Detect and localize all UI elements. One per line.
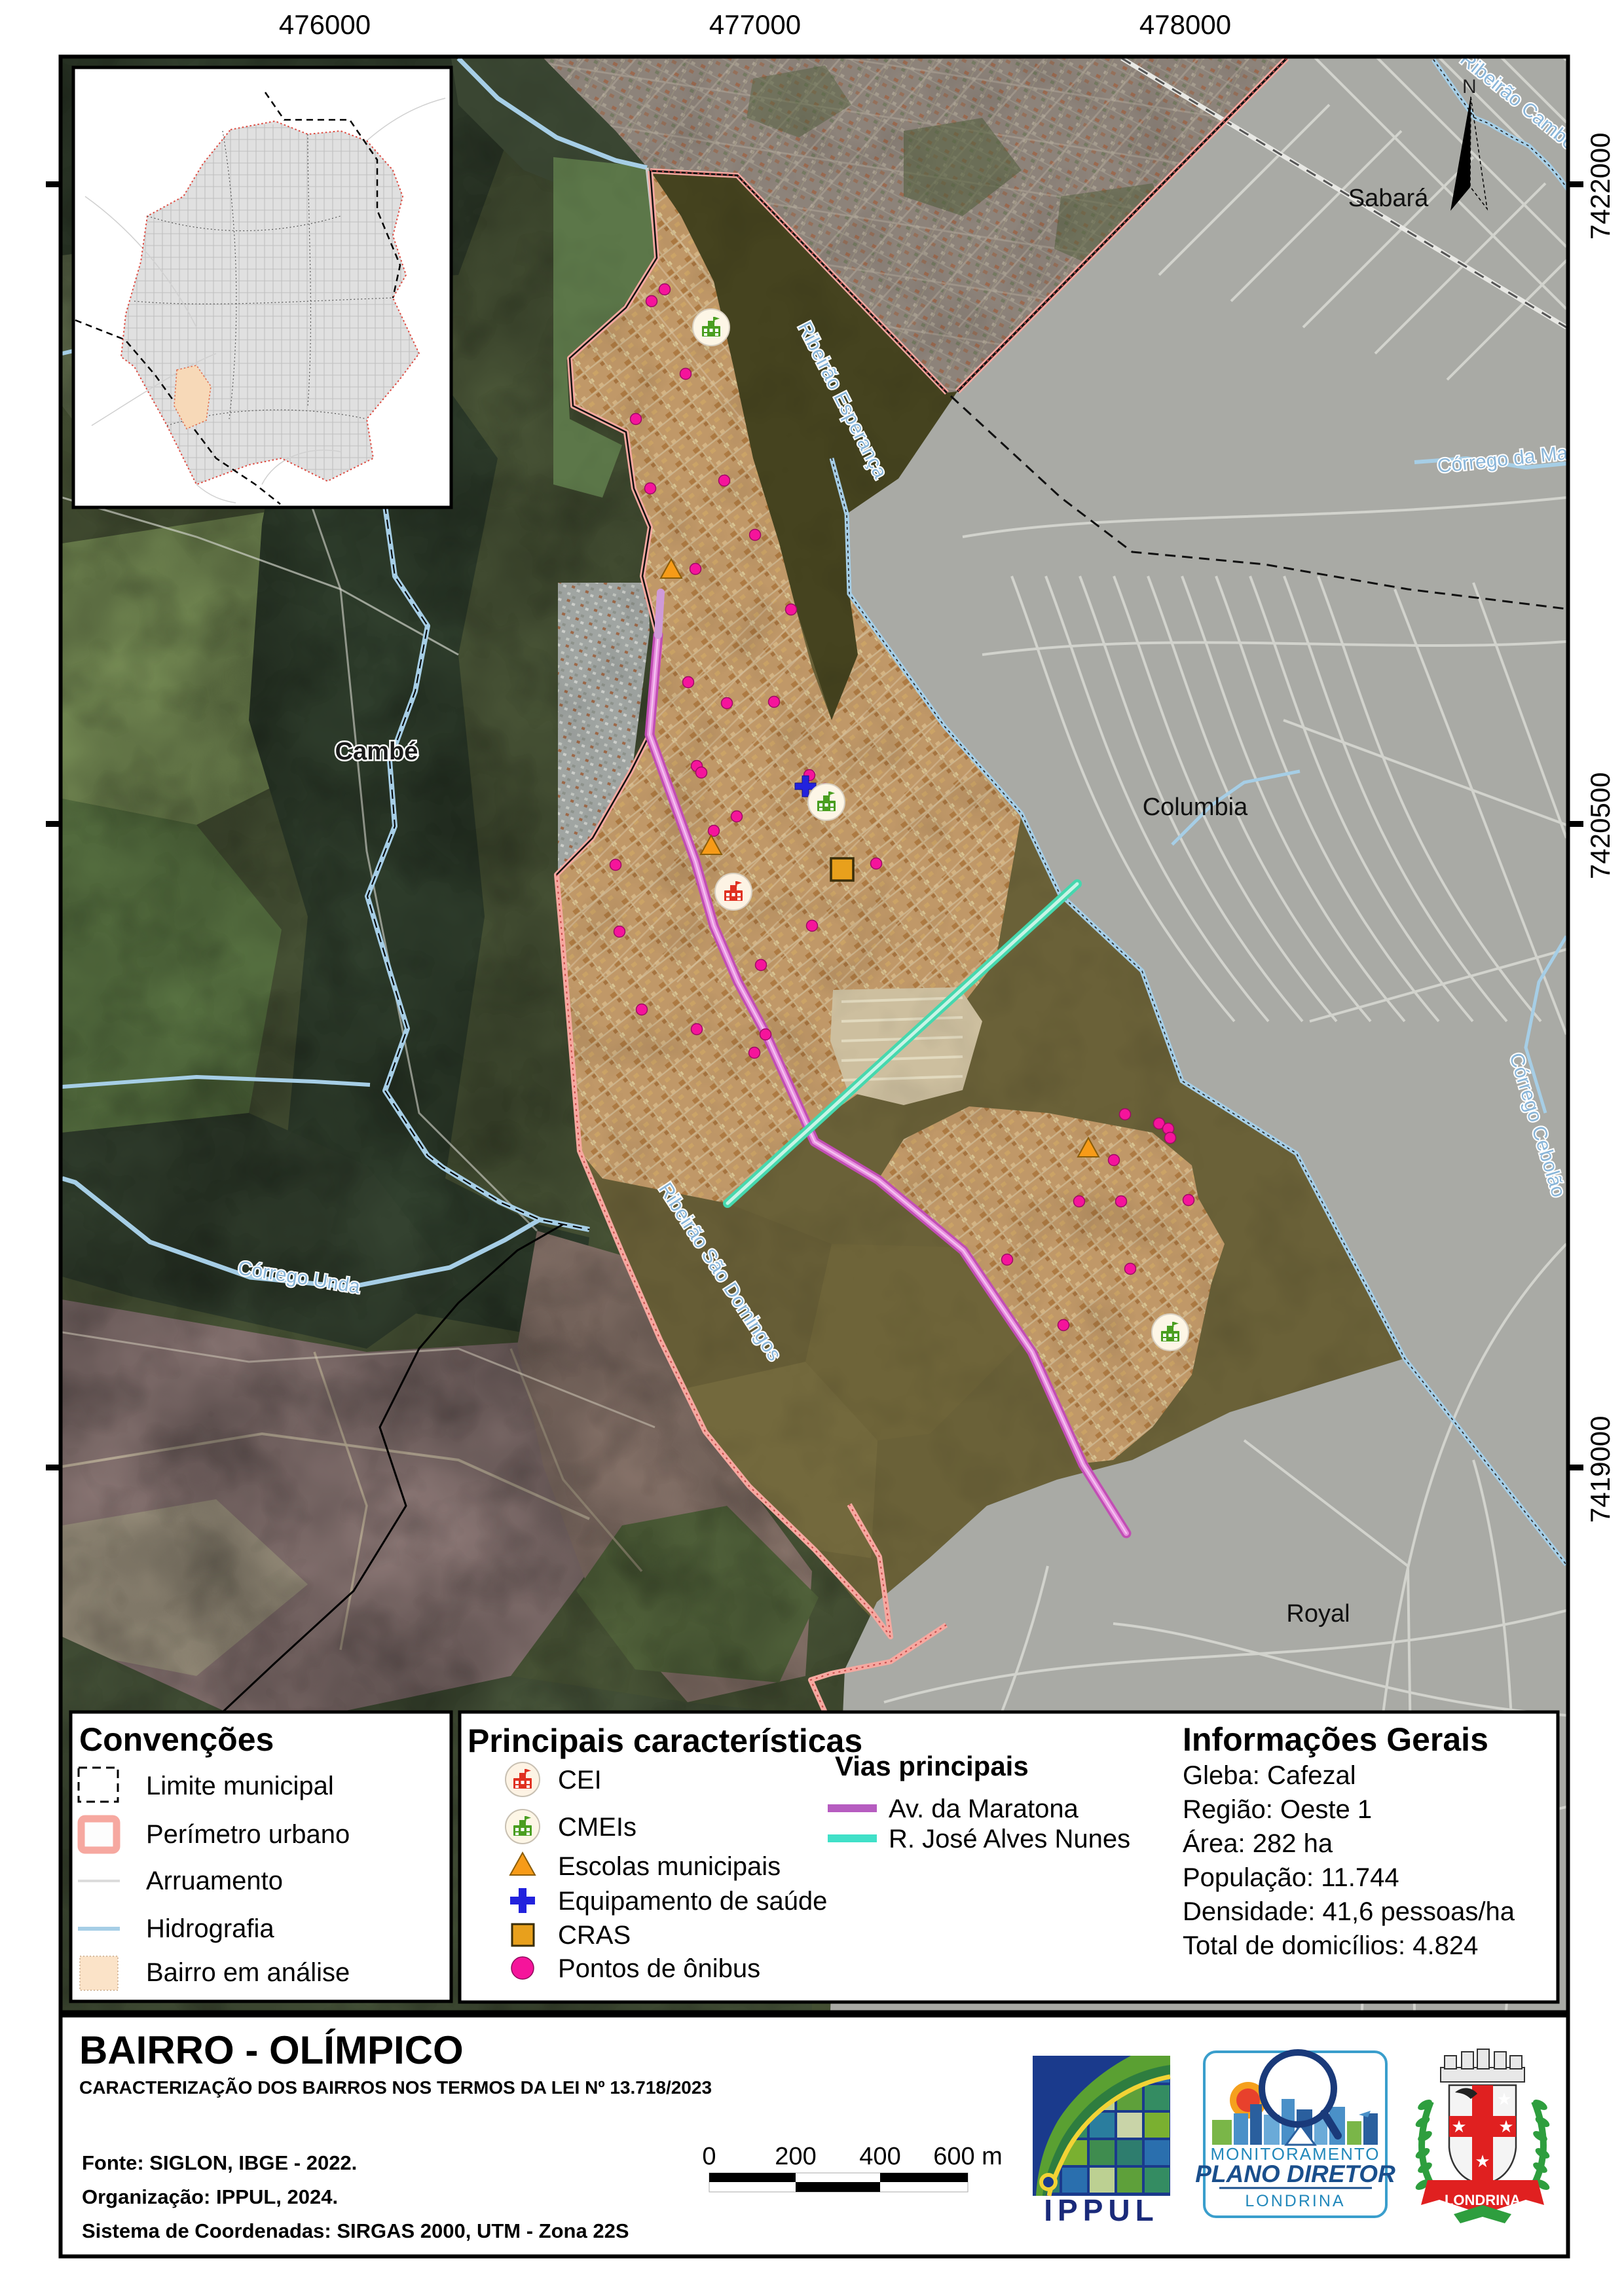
svg-text:População: 11.744: População: 11.744 bbox=[1183, 1863, 1399, 1892]
svg-text:R. José Alves Nunes: R. José Alves Nunes bbox=[889, 1825, 1130, 1853]
svg-text:★: ★ bbox=[1475, 2151, 1490, 2171]
svg-text:Escolas municipais: Escolas municipais bbox=[558, 1852, 781, 1881]
svg-text:600 m: 600 m bbox=[933, 2143, 1003, 2170]
svg-text:CARACTERIZAÇÃO DOS BAIRROS NOS: CARACTERIZAÇÃO DOS BAIRROS NOS TERMOS DA… bbox=[79, 2077, 712, 2098]
svg-text:476000: 476000 bbox=[279, 9, 371, 40]
svg-text:BAIRRO - OLÍMPICO: BAIRRO - OLÍMPICO bbox=[79, 2028, 464, 2072]
svg-text:★: ★ bbox=[1451, 2117, 1466, 2136]
svg-text:0: 0 bbox=[702, 2143, 716, 2170]
svg-text:400: 400 bbox=[859, 2143, 900, 2170]
svg-text:Fonte: SIGLON, IBGE - 2022.: Fonte: SIGLON, IBGE - 2022. bbox=[82, 2151, 357, 2174]
svg-text:Vias principais: Vias principais bbox=[835, 1751, 1029, 1781]
svg-text:Royal: Royal bbox=[1286, 1600, 1350, 1628]
svg-text:Arruamento: Arruamento bbox=[146, 1867, 283, 1895]
svg-text:7420500: 7420500 bbox=[1585, 772, 1615, 879]
svg-text:CRAS: CRAS bbox=[558, 1921, 631, 1950]
svg-text:N: N bbox=[1462, 76, 1477, 98]
svg-text:★: ★ bbox=[1498, 2117, 1513, 2136]
svg-text:Convenções: Convenções bbox=[79, 1721, 274, 1758]
svg-text:Cambé: Cambé bbox=[335, 738, 418, 765]
svg-text:Sistema de Coordenadas: SIRGAS: Sistema de Coordenadas: SIRGAS 2000, UTM… bbox=[82, 2219, 629, 2242]
svg-text:Sabará: Sabará bbox=[1348, 185, 1429, 212]
svg-text:7422000: 7422000 bbox=[1585, 132, 1615, 240]
svg-text:477000: 477000 bbox=[709, 9, 801, 40]
svg-text:Equipamento de saúde: Equipamento de saúde bbox=[558, 1887, 827, 1916]
svg-text:Área: 282 ha: Área: 282 ha bbox=[1183, 1829, 1333, 1858]
svg-text:478000: 478000 bbox=[1139, 9, 1231, 40]
svg-text:7419000: 7419000 bbox=[1585, 1415, 1615, 1523]
svg-text:Informações Gerais: Informações Gerais bbox=[1183, 1721, 1488, 1758]
svg-text:Pontos de ônibus: Pontos de ônibus bbox=[558, 1954, 760, 1983]
svg-text:Total de domicílios: 4.824: Total de domicílios: 4.824 bbox=[1183, 1931, 1478, 1960]
svg-text:200: 200 bbox=[775, 2143, 816, 2170]
svg-text:Hidrografia: Hidrografia bbox=[146, 1914, 274, 1943]
svg-text:Limite municipal: Limite municipal bbox=[146, 1772, 334, 1800]
svg-text:★: ★ bbox=[1496, 2089, 1511, 2109]
svg-text:Densidade: 41,6 pessoas/ha: Densidade: 41,6 pessoas/ha bbox=[1183, 1897, 1515, 1926]
svg-text:CMEIs: CMEIs bbox=[558, 1813, 637, 1842]
svg-text:Região: Oeste 1: Região: Oeste 1 bbox=[1183, 1795, 1372, 1824]
svg-text:Av. da Maratona: Av. da Maratona bbox=[889, 1795, 1079, 1823]
svg-text:Perímetro urbano: Perímetro urbano bbox=[146, 1820, 350, 1849]
svg-text:Columbia: Columbia bbox=[1143, 793, 1248, 821]
svg-text:PLANO DIRETOR: PLANO DIRETOR bbox=[1195, 2160, 1395, 2187]
svg-text:Gleba: Cafezal: Gleba: Cafezal bbox=[1183, 1761, 1356, 1790]
svg-text:LONDRINA: LONDRINA bbox=[1245, 2192, 1345, 2210]
svg-text:Organização: IPPUL, 2024.: Organização: IPPUL, 2024. bbox=[82, 2185, 338, 2208]
svg-text:CEI: CEI bbox=[558, 1766, 602, 1795]
svg-text:Principais características: Principais características bbox=[468, 1722, 862, 1759]
svg-text:Bairro em análise: Bairro em análise bbox=[146, 1958, 350, 1987]
svg-text:IPPUL: IPPUL bbox=[1044, 2193, 1158, 2227]
